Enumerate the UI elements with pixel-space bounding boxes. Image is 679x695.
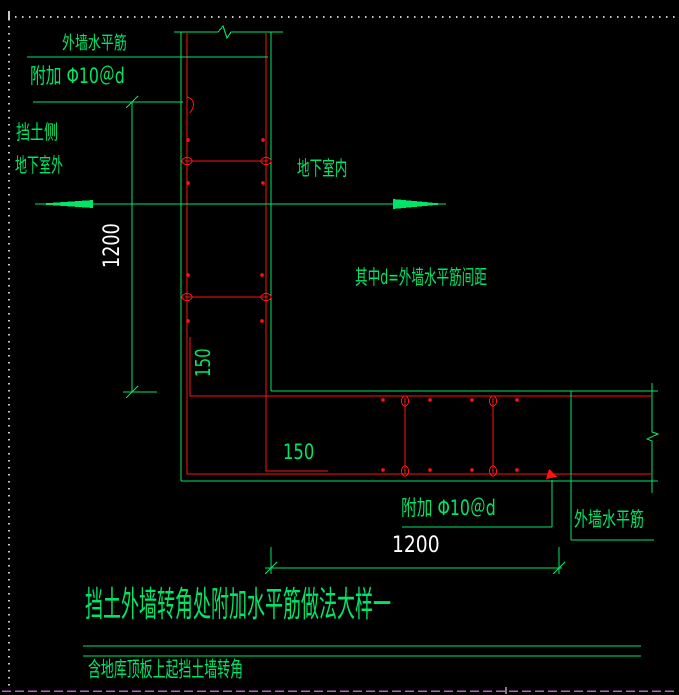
rebar-lines [187, 33, 652, 479]
inner-wall-rebar-with-hook [266, 33, 328, 471]
section-arrows [35, 199, 446, 209]
left-arrowhead [35, 200, 93, 208]
label-retaining-side: 挡土侧 [16, 121, 58, 143]
title-underlines [83, 646, 641, 656]
leader-lines [27, 57, 654, 540]
cad-drawing-canvas: 外墙水平筋 附加 Φ10＠d 挡土侧 地下室外 地下室内 其中d=外墙水平筋间距… [0, 0, 679, 695]
leader-hook-red [187, 97, 193, 113]
label-leg150-horizontal: 150 [283, 441, 314, 465]
dim-text-vertical-1200: 1200 [101, 223, 126, 268]
dim-text-horizontal-1200: 1200 [392, 534, 440, 559]
slab-end-break-line [647, 383, 658, 493]
sheet-bottom-edge [2, 687, 678, 694]
label-added-bar-bottom: 附加 Φ10＠d [401, 497, 496, 521]
outer-corner-rebar [187, 33, 652, 474]
label-outer-wall-hbar-bottom: 外墙水平筋 [574, 508, 644, 530]
label-outer-wall-hbar-top: 外墙水平筋 [62, 34, 127, 54]
label-leg150-vertical: 150 [192, 348, 214, 377]
slab-top-rebar-with-hook [190, 337, 652, 396]
right-arrowhead [393, 199, 446, 209]
dimension-vertical-1200 [123, 96, 157, 398]
concrete-outline [174, 26, 658, 493]
bar-section-dots [186, 138, 519, 472]
label-basement-inside: 地下室内 [297, 157, 347, 179]
label-note-d-spacing: 其中d=外墙水平筋间距 [355, 266, 487, 288]
drawing-title: 挡土外墙转角处附加水平筋做法大样一 [85, 586, 391, 626]
label-basement-outside: 地下室外 [15, 154, 63, 176]
drawing-subtitle: 含地库顶板上起挡土墙转角 [88, 659, 243, 682]
rebar-ties [182, 158, 497, 477]
label-added-bar-top: 附加 Φ10＠d [30, 65, 125, 89]
wall-top-cap-with-break [174, 26, 283, 38]
